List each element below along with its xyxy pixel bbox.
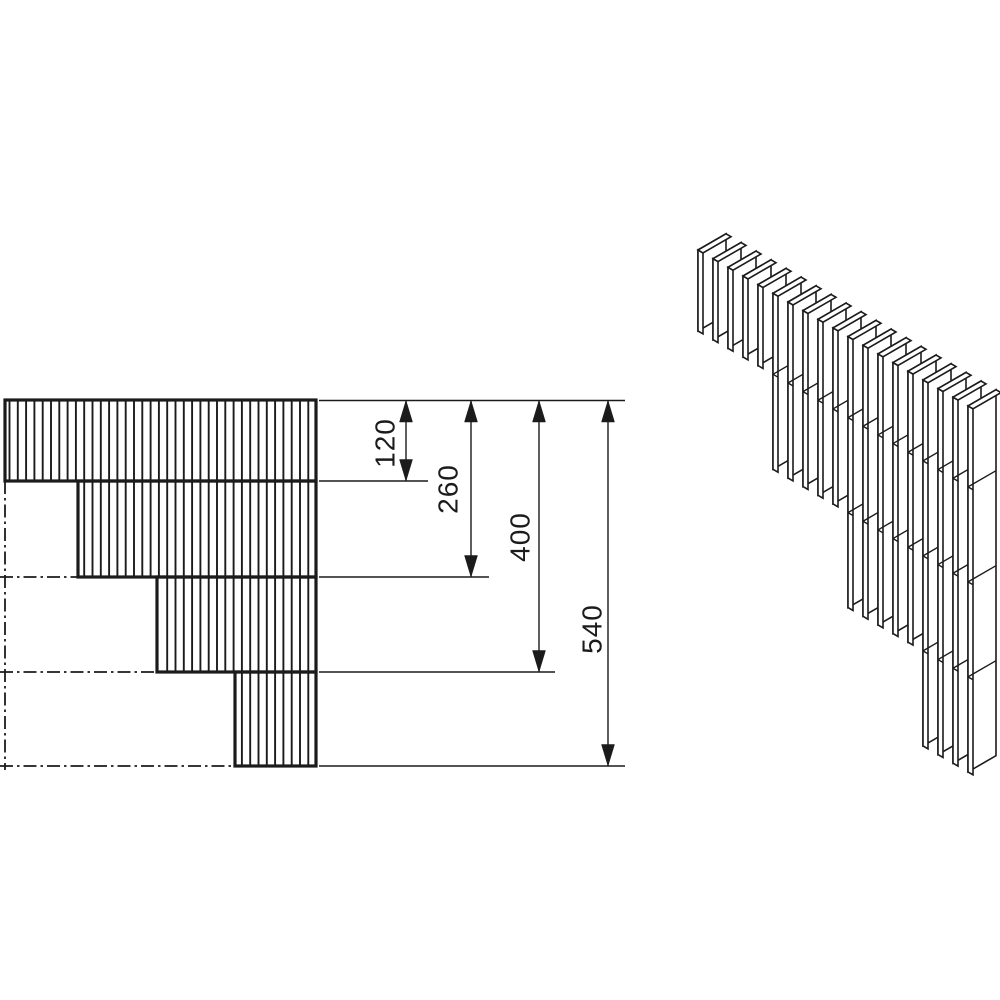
arrowhead-up (602, 401, 615, 423)
slat-front-face (728, 267, 733, 351)
arrowhead-up (400, 401, 413, 423)
slat-front-face (848, 337, 853, 611)
slat-front-face (758, 285, 763, 369)
slat-front-face (968, 406, 973, 775)
slat-front-face (938, 389, 943, 758)
dimension-label-400: 400 (505, 512, 536, 562)
slat-front-face (953, 397, 958, 766)
dimension-label-540: 540 (577, 604, 608, 654)
arrowhead-down (602, 745, 615, 767)
dimensioning (319, 401, 625, 767)
dimension-label-120: 120 (370, 418, 401, 468)
front-view (0, 400, 316, 770)
slat-front-face (713, 259, 718, 343)
arrowhead-down (400, 460, 413, 482)
slat-front-face (818, 319, 823, 498)
slat-front-face (878, 354, 883, 628)
slat-front-face (698, 250, 703, 334)
slat-front-face (773, 293, 778, 472)
slat-front-face (923, 380, 928, 749)
slat-front-face (908, 371, 913, 645)
slat-front-face (803, 311, 808, 490)
slat-front-face (863, 345, 868, 619)
arrowhead-up (465, 401, 478, 423)
arrowhead-down (465, 556, 478, 578)
slat-front-face (893, 363, 898, 637)
arrowhead-up (533, 401, 546, 423)
slat-front-face (743, 276, 748, 360)
technical-drawing-page: 120 260 400 540 (0, 0, 1000, 1000)
dimension-label-260: 260 (433, 464, 464, 514)
arrowhead-down (533, 651, 546, 673)
drawing-canvas: 120 260 400 540 (0, 0, 1000, 1000)
block-outline-row2 (78, 481, 316, 577)
isometric-view (698, 234, 1000, 775)
slat-front-face (833, 328, 838, 507)
slat-front-face (788, 302, 793, 481)
dimension-labels: 120 260 400 540 (370, 418, 608, 654)
